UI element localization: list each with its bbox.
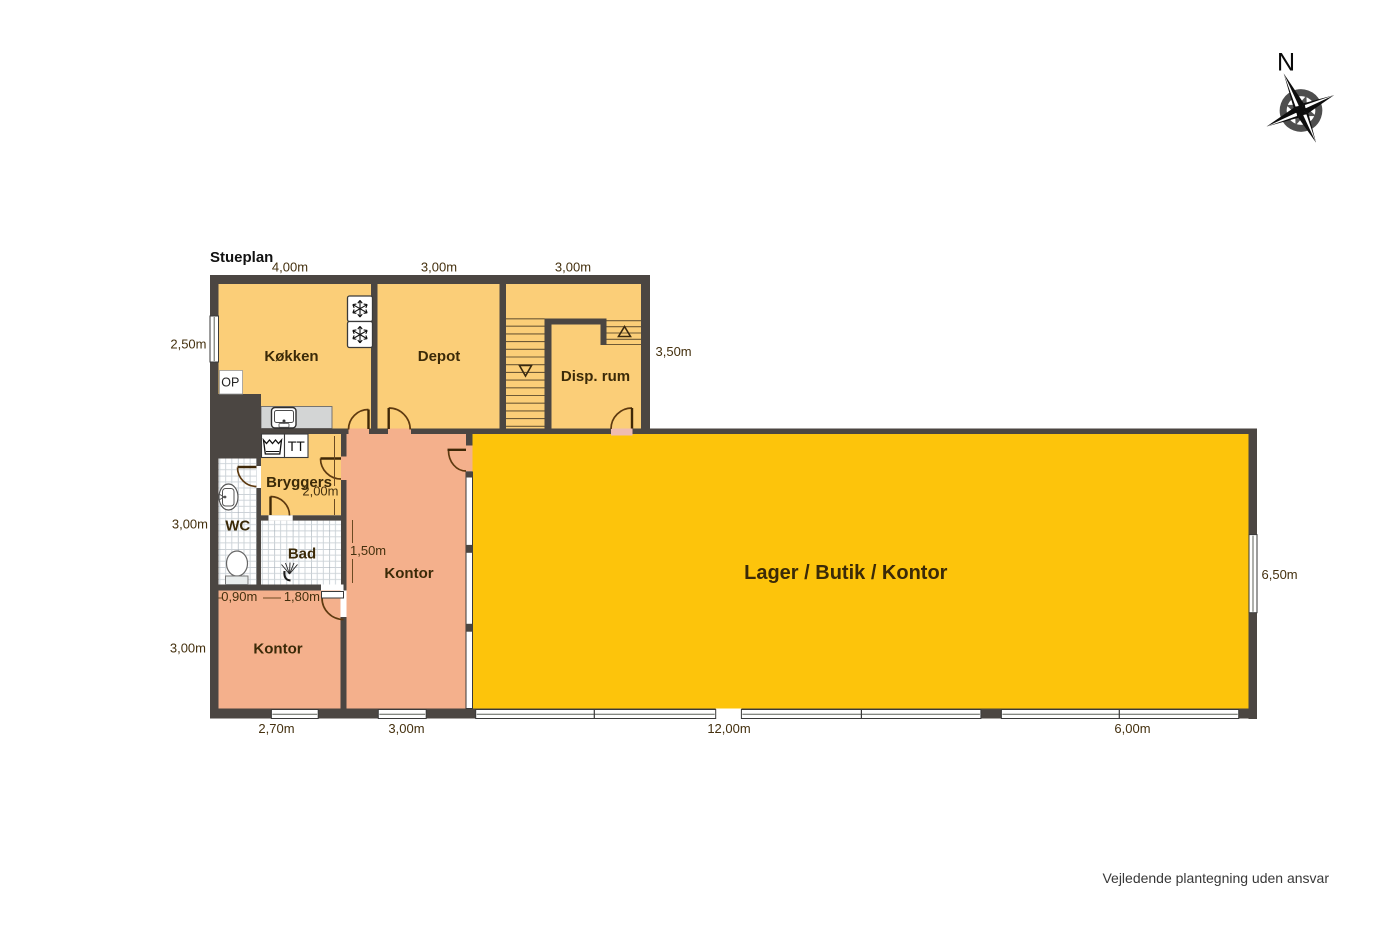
svg-text:Kontor: Kontor — [384, 565, 433, 582]
svg-text:Lager / Butik / Kontor: Lager / Butik / Kontor — [744, 562, 948, 584]
svg-text:WC: WC — [225, 518, 250, 535]
svg-text:Disp. rum: Disp. rum — [561, 368, 630, 385]
svg-text:3,00m: 3,00m — [172, 517, 208, 532]
svg-text:3,00m: 3,00m — [170, 641, 206, 656]
svg-text:Stueplan: Stueplan — [210, 249, 273, 266]
svg-text:Bad: Bad — [288, 546, 316, 563]
svg-text:0,90m: 0,90m — [221, 589, 257, 604]
svg-text:12,00m: 12,00m — [707, 721, 750, 736]
svg-text:3,50m: 3,50m — [656, 344, 692, 359]
svg-text:1,50m: 1,50m — [350, 543, 386, 558]
svg-text:Kontor: Kontor — [253, 641, 302, 658]
svg-text:2,70m: 2,70m — [258, 721, 294, 736]
svg-text:Bryggers: Bryggers — [266, 474, 332, 491]
svg-text:Vejledende plantegning uden an: Vejledende plantegning uden ansvar — [1102, 870, 1329, 886]
svg-text:1,80m: 1,80m — [284, 589, 320, 604]
svg-text:6,00m: 6,00m — [1114, 721, 1150, 736]
svg-text:3,00m: 3,00m — [555, 260, 591, 275]
svg-text:Køkken: Køkken — [264, 348, 318, 365]
svg-text:Depot: Depot — [418, 348, 461, 365]
svg-text:3,00m: 3,00m — [421, 260, 457, 275]
svg-text:6,50m: 6,50m — [1262, 567, 1298, 582]
svg-text:TT: TT — [288, 438, 306, 454]
svg-text:2,50m: 2,50m — [170, 337, 206, 352]
svg-text:3,00m: 3,00m — [388, 721, 424, 736]
svg-text:N: N — [1277, 49, 1295, 77]
svg-text:OP: OP — [221, 376, 239, 390]
svg-text:4,00m: 4,00m — [272, 260, 308, 275]
